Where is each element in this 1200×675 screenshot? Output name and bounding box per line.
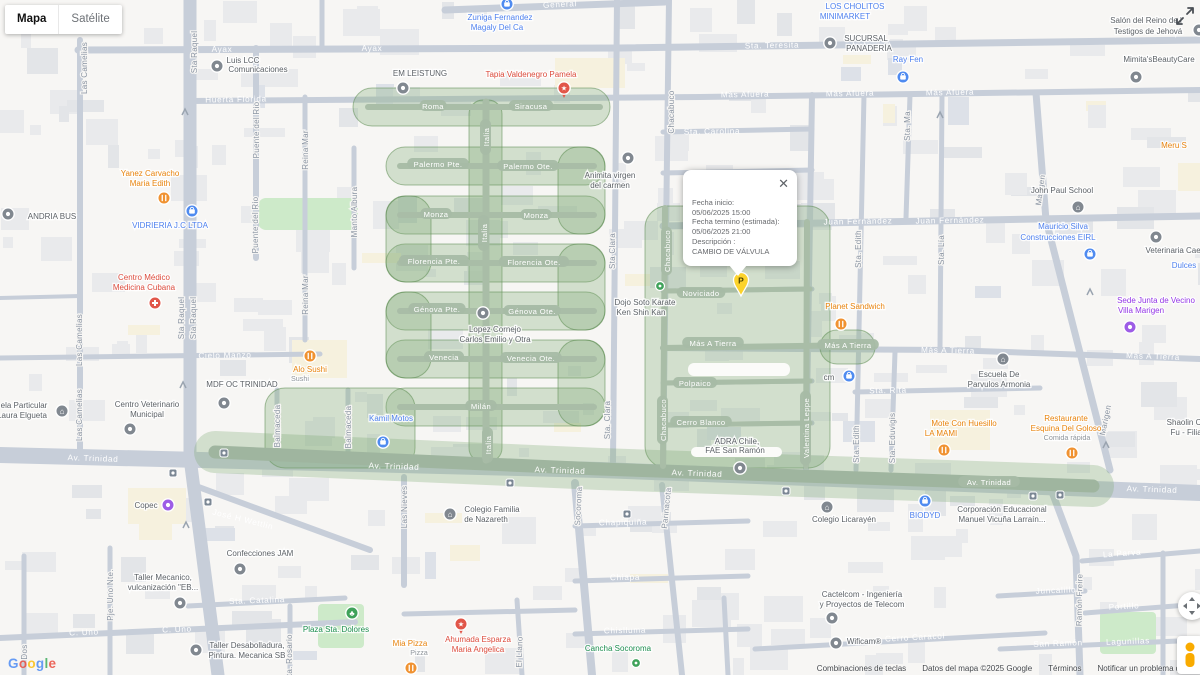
icon-circle <box>158 192 170 204</box>
building <box>1005 173 1027 195</box>
school-icon[interactable]: ⌂ <box>821 501 833 513</box>
building <box>1025 69 1048 79</box>
logo-letter: e <box>49 656 57 671</box>
street-label: Italia <box>478 215 489 251</box>
poi-label[interactable]: Ahumada Esparza <box>445 635 511 644</box>
street-label: Siracusa <box>509 100 553 111</box>
poi-label[interactable]: MDF OC TRINIDAD <box>206 380 278 389</box>
poi-label[interactable]: Fu - Filial <box>1171 428 1200 437</box>
street-name: Más A Tierra <box>921 346 975 356</box>
glyph <box>830 616 834 620</box>
street-label: Chiapa <box>610 573 640 583</box>
building <box>582 527 596 536</box>
glyph: ⌂ <box>1076 203 1081 212</box>
poi-label[interactable]: Centro Médico <box>118 273 171 282</box>
poi-label[interactable]: John Paul School <box>1031 186 1093 195</box>
park <box>1100 612 1156 654</box>
fullscreen-icon[interactable] <box>1174 5 1196 27</box>
glyph <box>1134 75 1138 79</box>
building <box>148 149 160 159</box>
poi-label[interactable]: SUCURSAL <box>844 34 888 43</box>
pegman-button[interactable] <box>1177 636 1200 674</box>
glyph <box>6 212 10 216</box>
glyph <box>1070 450 1071 456</box>
transit-stop-glyph <box>625 512 628 515</box>
google-maps-app: GeneralAyaxAyaxSta. TeresitaHuerta Flori… <box>0 0 1200 675</box>
street-name: Sta. Carolina <box>684 127 741 137</box>
street-name: Sta Raquel <box>189 297 198 340</box>
building <box>22 552 56 572</box>
poi-label[interactable]: Carlos Emilio y Otra <box>459 335 531 344</box>
poi[interactable]: Shaolin CFu - Filial <box>1167 418 1200 437</box>
poi-label[interactable]: Restaurante <box>1044 414 1088 423</box>
building <box>275 496 307 514</box>
poi-label[interactable]: de Nazareth <box>464 515 508 524</box>
street-name: Venecia <box>429 353 459 362</box>
popup-line: Fecha inicio: <box>692 198 789 208</box>
logo-letter: o <box>27 656 36 671</box>
poi-label[interactable]: Sede Junta de Vecino <box>1117 296 1195 305</box>
street-name: Sta. Lía <box>937 235 946 265</box>
building <box>41 237 72 261</box>
food-icon[interactable] <box>405 662 417 674</box>
poi[interactable]: Meru S <box>1161 141 1187 150</box>
street-name: C. Uno <box>162 624 192 634</box>
dot-icon[interactable] <box>477 307 489 319</box>
poi-label[interactable]: Taller Desabolladura, <box>209 641 284 650</box>
bag-icon[interactable] <box>377 436 389 448</box>
street-name: Sta. Edith <box>852 425 861 463</box>
poi-label[interactable]: y Proyectos de Telecom <box>820 600 905 609</box>
building <box>425 552 436 579</box>
school-icon[interactable]: ⌂ <box>56 405 68 417</box>
street-label: Las Camelias <box>75 389 84 441</box>
glyph <box>154 300 156 306</box>
transit-stop-glyph <box>222 451 225 454</box>
transit-stop-glyph <box>1058 493 1061 496</box>
poi-label[interactable]: LA MAMI <box>925 429 957 438</box>
poi-label[interactable]: Dojo Soto Karate <box>615 298 676 307</box>
school-icon[interactable]: ⌂ <box>1072 201 1084 213</box>
poi-label[interactable]: Comida rápida <box>1044 433 1091 442</box>
street-label: Las Camelias <box>80 42 89 94</box>
building <box>0 110 24 133</box>
street-label: El Llano <box>514 636 524 668</box>
poi-label[interactable]: Corporación Educacional <box>957 505 1047 514</box>
dot-icon[interactable] <box>1130 71 1142 83</box>
street-name: San Ramón <box>1033 638 1083 649</box>
street-label: Chacabuco <box>661 227 672 276</box>
street-name: Las Nieves <box>400 486 409 529</box>
street-label: Sta Clara <box>608 233 617 269</box>
building <box>1188 92 1200 102</box>
glyph <box>178 601 182 605</box>
building <box>874 373 908 382</box>
poi-label[interactable]: Pizza <box>410 648 428 657</box>
poi-label[interactable]: Centro Veterinario <box>115 400 180 409</box>
glyph <box>401 86 405 90</box>
poi-label[interactable]: ADRA Chile, <box>715 437 759 446</box>
bag-icon[interactable] <box>501 0 513 10</box>
building <box>234 298 263 312</box>
building <box>777 13 792 36</box>
street-label: Manto Albura <box>350 186 359 237</box>
attribution-bar: Combinaciones de teclasDatos del mapa ©2… <box>817 664 1198 673</box>
dot-icon[interactable] <box>622 152 634 164</box>
poi-label[interactable]: Animita virgen <box>585 171 636 180</box>
poi-label[interactable]: Esquina Del Goloso <box>1031 424 1102 433</box>
building <box>916 365 947 373</box>
street-name: Más A Tierra <box>1126 351 1180 362</box>
street-name: Las Camelias <box>80 42 89 94</box>
transit-stop-glyph <box>784 489 787 492</box>
glyph <box>839 321 840 327</box>
street-name: Sta. Clara <box>603 400 612 439</box>
glyph <box>942 447 943 453</box>
street-label: Juncalillo <box>1036 585 1077 595</box>
building <box>934 587 946 608</box>
poi-label[interactable]: Escuela De <box>979 370 1020 379</box>
poi-label[interactable]: Cactelcom - Ingeniería <box>822 590 903 599</box>
street-label: Génova Ote. <box>503 305 560 316</box>
dot-icon[interactable] <box>124 423 136 435</box>
street-label: Av. Trinidad <box>67 453 118 464</box>
street-label: Monza <box>420 208 452 219</box>
street-name: Juan Fernández <box>823 216 892 226</box>
building <box>763 521 797 537</box>
bag-icon[interactable] <box>919 495 931 507</box>
building <box>725 549 755 570</box>
food-icon[interactable] <box>1066 447 1078 459</box>
poi-label[interactable]: Salón del Reino de l <box>1110 16 1182 25</box>
map-canvas[interactable]: GeneralAyaxAyaxSta. TeresitaHuerta Flori… <box>0 0 1200 675</box>
poi-label[interactable]: PANADERÍA <box>846 44 892 53</box>
poi-label[interactable]: MINIMARKET <box>820 12 870 21</box>
glyph <box>311 353 312 359</box>
building <box>258 300 292 315</box>
street-name: Sta Raquel <box>190 31 199 74</box>
street-name: Reina Mar <box>301 130 310 170</box>
glyph <box>1154 235 1158 239</box>
school-icon[interactable]: ⌂ <box>444 508 456 520</box>
street-label: Juan Fernández <box>915 215 984 225</box>
road <box>613 0 617 462</box>
building <box>948 97 969 125</box>
glyph <box>834 641 838 645</box>
street-label: Noviciado <box>677 287 726 298</box>
building <box>1195 569 1200 590</box>
poi-label[interactable]: EM LEISTUNG <box>393 69 447 78</box>
glyph: ★ <box>458 621 464 629</box>
food-icon[interactable] <box>304 350 316 362</box>
street-label: Portillo <box>1108 601 1139 612</box>
poi[interactable]: Dulces <box>1172 261 1196 270</box>
glyph <box>900 75 906 79</box>
poi-label[interactable]: Dulces <box>1172 261 1196 270</box>
street-name: Chislluma <box>604 626 646 636</box>
street-name: Génova Pte. <box>414 305 461 314</box>
poi-label[interactable]: Ken Shin Kan <box>617 308 666 317</box>
poi-label[interactable]: Magaly Del Ca <box>471 23 524 32</box>
med-icon[interactable] <box>149 297 161 309</box>
building <box>975 286 1001 298</box>
poi-label[interactable]: Medicina Cubana <box>113 283 176 292</box>
glyph: ⌂ <box>60 407 65 416</box>
poi-label[interactable]: Pintura. Mecanica SB <box>209 651 286 660</box>
poi-label[interactable]: ANDRIA BUS <box>28 212 76 221</box>
glyph <box>128 427 132 431</box>
street-label: Italia <box>480 119 491 155</box>
poi-label[interactable]: Zuniga Fernandez <box>468 13 533 22</box>
poi-label[interactable]: Laura Elgueta <box>0 411 47 420</box>
dot-icon[interactable] <box>211 60 223 72</box>
glyph <box>162 195 163 201</box>
road <box>0 296 80 298</box>
poi-label[interactable]: Cancha Socoroma <box>585 644 652 653</box>
poi-label[interactable]: Manuel Vicuña Larraín... <box>958 515 1045 524</box>
glyph <box>412 665 413 671</box>
street-label: Más A Tierra <box>682 337 744 348</box>
food-icon[interactable] <box>938 444 950 456</box>
street-name: Sta. Edith <box>854 230 863 268</box>
dot-icon[interactable] <box>1124 321 1136 333</box>
street-name: Av. Trinidad <box>967 478 1011 487</box>
poi-label[interactable]: Copec <box>134 501 157 510</box>
poi-label[interactable]: ela Particular <box>1 401 48 410</box>
poi-label[interactable]: Yanez Carvacho <box>121 169 180 178</box>
street-label: Más Afuera <box>826 89 875 99</box>
building <box>841 67 861 81</box>
poi[interactable]: Copec <box>134 499 174 511</box>
poi-label[interactable]: Construcciones EIRL <box>1020 233 1096 242</box>
dot-icon[interactable] <box>397 82 409 94</box>
poi-label[interactable]: vulcanización "EB... <box>128 583 198 592</box>
google-logo[interactable]: Google <box>8 656 56 671</box>
street-name: Pje. Uno Nte. <box>106 569 115 620</box>
street-label: Más A Tierra <box>1126 351 1180 362</box>
building <box>223 1 257 23</box>
poi-label[interactable]: Colegio Licarayén <box>812 515 876 524</box>
transit-stop-glyph <box>508 481 511 484</box>
street-label: Ayax <box>362 44 383 53</box>
street-label: Monza <box>520 209 552 220</box>
dot-icon[interactable] <box>830 637 842 649</box>
street-name: Las Camelias <box>75 314 84 366</box>
poi[interactable]: Corporación EducacionalManuel Vicuña Lar… <box>957 505 1047 524</box>
street-name: Sta. Rosario <box>285 634 294 675</box>
building <box>848 562 883 573</box>
street-label: Roma <box>419 100 446 111</box>
glyph <box>380 440 386 444</box>
street-name: Sta. Rita <box>869 386 907 396</box>
street-name: Roma <box>422 102 444 111</box>
satellite-button[interactable]: Satélite <box>59 5 121 34</box>
street-label: Florencia Ote. <box>499 256 569 267</box>
dot-icon[interactable] <box>174 597 186 609</box>
dot-icon[interactable] <box>826 612 838 624</box>
street-label: Palermo Pte. <box>407 158 469 169</box>
poi-label[interactable]: LOS CHOLITOS <box>826 2 885 11</box>
poi-label[interactable]: Meru S <box>1161 141 1187 150</box>
park-icon[interactable] <box>656 282 665 291</box>
poi-label[interactable]: Municipal <box>130 410 164 419</box>
building <box>26 613 58 636</box>
icon-circle <box>835 318 847 330</box>
building <box>67 100 104 112</box>
building <box>1014 405 1025 415</box>
building <box>627 63 645 71</box>
glyph <box>842 321 843 327</box>
dot-icon[interactable] <box>734 462 746 474</box>
building <box>212 145 226 165</box>
poi-label[interactable]: Kamil Motos <box>369 414 413 423</box>
dot-icon[interactable] <box>190 644 202 656</box>
street-name: Reina Mar <box>301 275 310 315</box>
poi-label[interactable]: Lopez Cornejo <box>469 325 522 334</box>
poi-label[interactable]: Wificam® <box>847 637 881 646</box>
street-label: Chacabuco <box>657 396 668 445</box>
poi-label[interactable]: VIDRIERIA J.C LTDA <box>132 221 209 230</box>
popup-line: Descripción : <box>692 237 789 247</box>
map-button[interactable]: Mapa <box>5 5 58 34</box>
building <box>964 397 998 408</box>
food-icon[interactable] <box>158 192 170 204</box>
poi-label[interactable]: Mimita'sBeautyCare <box>1123 55 1195 64</box>
street-label: Génova Pte. <box>408 303 465 314</box>
tree-icon[interactable]: ♣ <box>346 607 358 619</box>
poi-label[interactable]: Villa Marigen <box>1118 306 1164 315</box>
street-name: Milán <box>471 402 491 411</box>
street-name: Noviciado <box>683 289 720 298</box>
building <box>832 413 848 421</box>
street-name: Florencia Ote. <box>507 258 560 267</box>
poi-label[interactable]: Shaolin C <box>1167 418 1200 427</box>
street-name: Génova Ote. <box>508 307 555 316</box>
poi-label[interactable]: Parvulos Armonia <box>968 380 1031 389</box>
building <box>1178 163 1200 191</box>
street-name: Sta. Teresita <box>745 41 800 51</box>
glyph <box>945 447 946 453</box>
poi-label[interactable]: cm <box>824 373 835 382</box>
building <box>144 28 163 44</box>
dot-icon[interactable] <box>218 397 230 409</box>
street-label: Cielo Manzo <box>198 351 251 361</box>
poi-label[interactable]: Colegio Familia <box>464 505 520 514</box>
poi-label[interactable]: Mote Con Huesillo <box>931 419 997 428</box>
bag-icon[interactable] <box>186 205 198 217</box>
glyph <box>626 156 630 160</box>
poi-label[interactable]: Veterinaria Cael <box>1146 246 1200 255</box>
poi-label[interactable]: BIODYD <box>910 511 941 520</box>
transit-stop-glyph <box>171 471 174 474</box>
poi-label[interactable]: Testigos de Jehová <box>1114 27 1183 36</box>
poi-label[interactable]: FAE San Ramón <box>705 446 765 455</box>
poi-label[interactable]: Maria Edith <box>130 179 170 188</box>
building <box>1070 45 1105 56</box>
building <box>771 629 805 645</box>
poi-label[interactable]: Tapia Valdenegro Pamela <box>485 70 577 79</box>
poi-label[interactable]: Sushi <box>291 374 309 383</box>
dot-icon[interactable] <box>824 37 836 49</box>
poi-label[interactable]: Ray Fen <box>893 55 923 64</box>
bag-icon[interactable] <box>897 71 909 83</box>
popup-line: 05/06/2025 15:00 <box>692 208 789 218</box>
street-name: Puente del Rio <box>252 101 261 158</box>
poi-label[interactable]: Confecciones JAM <box>227 549 294 558</box>
street-label: Palermo Ote. <box>497 160 559 171</box>
street-name: Av. Trinidad <box>67 453 118 464</box>
pan-control-button[interactable] <box>1178 592 1200 620</box>
glyph <box>1128 325 1132 329</box>
building <box>244 128 285 137</box>
street-name: Ayax <box>212 45 233 54</box>
poi-label[interactable]: Mauricio Silva <box>1038 222 1088 231</box>
building <box>332 263 346 285</box>
glyph: ♣ <box>349 609 355 618</box>
popup-line: 05/06/2025 21:00 <box>692 227 789 237</box>
street-label: Chislluma <box>604 626 646 636</box>
dot-icon[interactable] <box>2 208 14 220</box>
glyph <box>846 374 852 378</box>
street-name: Puente del Rio <box>251 196 260 253</box>
bag-icon[interactable] <box>843 370 855 382</box>
poi-label[interactable]: Taller Mecanico, <box>134 573 192 582</box>
logo-letter: G <box>8 656 19 671</box>
building <box>73 614 95 628</box>
poi-label[interactable]: Luis LCC <box>227 56 260 65</box>
street-label: Sta Raquel <box>190 31 199 74</box>
poi-label[interactable]: Comunicaciones <box>228 65 287 74</box>
school-icon[interactable]: ⌂ <box>997 353 1009 365</box>
close-icon[interactable]: ✕ <box>778 177 789 190</box>
pegman-icon <box>1177 636 1200 674</box>
park <box>258 198 358 230</box>
building <box>986 221 1005 243</box>
popup-text: Fecha inicio:05/06/2025 15:00Fecha termi… <box>692 198 789 256</box>
attribution-item[interactable]: Combinaciones de teclas <box>817 664 906 673</box>
building <box>220 360 246 376</box>
poi-label[interactable]: Alo Sushi <box>293 365 327 374</box>
map-type-control: Mapa Satélite <box>5 5 122 34</box>
street-label: Sta. Rosario <box>285 634 294 675</box>
poi-label[interactable]: Plaza Sta. Dolores <box>303 625 369 634</box>
street-label: Sta. Ma <box>903 111 912 141</box>
building <box>216 473 244 495</box>
building <box>357 6 378 17</box>
street-name: Ayax <box>362 44 383 53</box>
poi-label[interactable]: Maria Angelica <box>452 645 505 654</box>
bag-icon[interactable] <box>1084 248 1096 260</box>
glyph <box>189 209 195 213</box>
dot-icon[interactable] <box>234 563 246 575</box>
street-name: Cerro Blanco <box>676 418 725 427</box>
street-name: Más Afuera <box>926 88 975 98</box>
street-name: Av. Trinidad <box>671 468 722 479</box>
dot-icon[interactable] <box>162 499 174 511</box>
poi-label[interactable]: Mia Pizza <box>393 639 428 648</box>
street-name: Cielo Manzo <box>198 351 251 361</box>
street-label: Más Afuera <box>721 90 770 100</box>
street-label: Más Afuera <box>926 88 975 98</box>
poi-label[interactable]: Planet Sandwich <box>825 302 885 311</box>
park-icon[interactable] <box>632 659 641 668</box>
street-label: Cerro Blanco <box>670 416 732 427</box>
attribution-item[interactable]: Términos <box>1048 664 1081 673</box>
street-label: Reina Mar <box>301 275 310 315</box>
food-icon[interactable] <box>835 318 847 330</box>
dot-icon[interactable] <box>1150 231 1162 243</box>
poi-label[interactable]: del carmen <box>590 181 630 190</box>
